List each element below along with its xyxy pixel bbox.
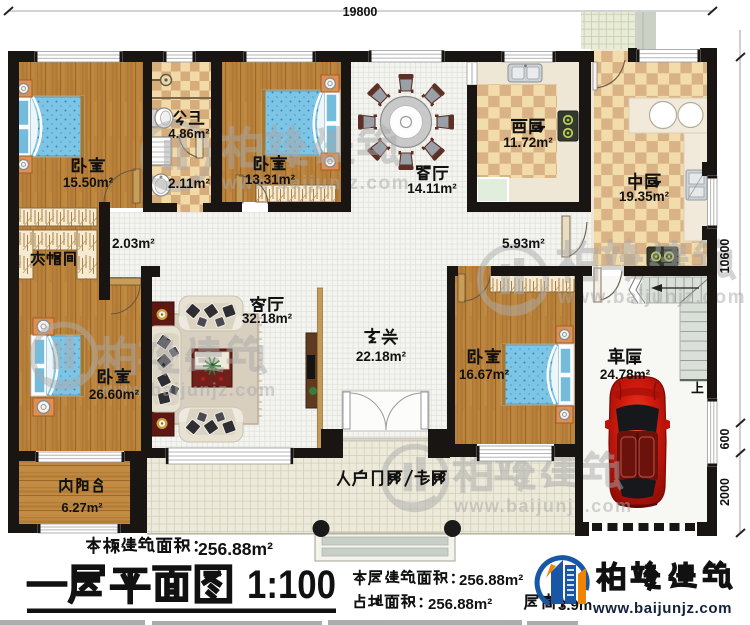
svg-text:14.11m²: 14.11m² xyxy=(407,181,457,196)
svg-text:10600: 10600 xyxy=(718,239,732,274)
svg-text:600: 600 xyxy=(718,429,732,450)
svg-text:www.baijunjz.com: www.baijunjz.com xyxy=(453,496,632,516)
svg-text:11.72m²: 11.72m² xyxy=(503,135,553,150)
svg-text:26.60m²: 26.60m² xyxy=(89,387,140,402)
svg-text:4.86m²: 4.86m² xyxy=(168,126,210,141)
svg-text:22.18m²: 22.18m² xyxy=(356,349,407,364)
svg-text:19.35m²: 19.35m² xyxy=(619,189,670,204)
svg-text:2.11m²: 2.11m² xyxy=(168,176,211,191)
svg-text:5.93m²: 5.93m² xyxy=(502,236,545,251)
svg-text:19800: 19800 xyxy=(343,5,378,19)
svg-text:13.31m²: 13.31m² xyxy=(245,172,296,187)
svg-text:16.67m²: 16.67m² xyxy=(459,367,510,382)
svg-text:1:100: 1:100 xyxy=(247,563,336,607)
svg-text:32.18m²: 32.18m² xyxy=(242,311,293,326)
svg-text:6.27m²: 6.27m² xyxy=(61,500,103,515)
svg-text:2000: 2000 xyxy=(718,478,732,506)
svg-text:15.50m²: 15.50m² xyxy=(63,175,114,190)
svg-text:www.baijunjz.com: www.baijunjz.com xyxy=(592,600,732,617)
svg-text:www.baijunjz.com: www.baijunjz.com xyxy=(557,287,746,308)
svg-text:24.78m²: 24.78m² xyxy=(600,367,651,382)
svg-text:2.03m²: 2.03m² xyxy=(112,236,155,251)
svg-text:256.88m²: 256.88m² xyxy=(428,596,492,613)
svg-text:256.88m²: 256.88m² xyxy=(198,539,273,559)
svg-text:256.88m²: 256.88m² xyxy=(459,572,523,589)
